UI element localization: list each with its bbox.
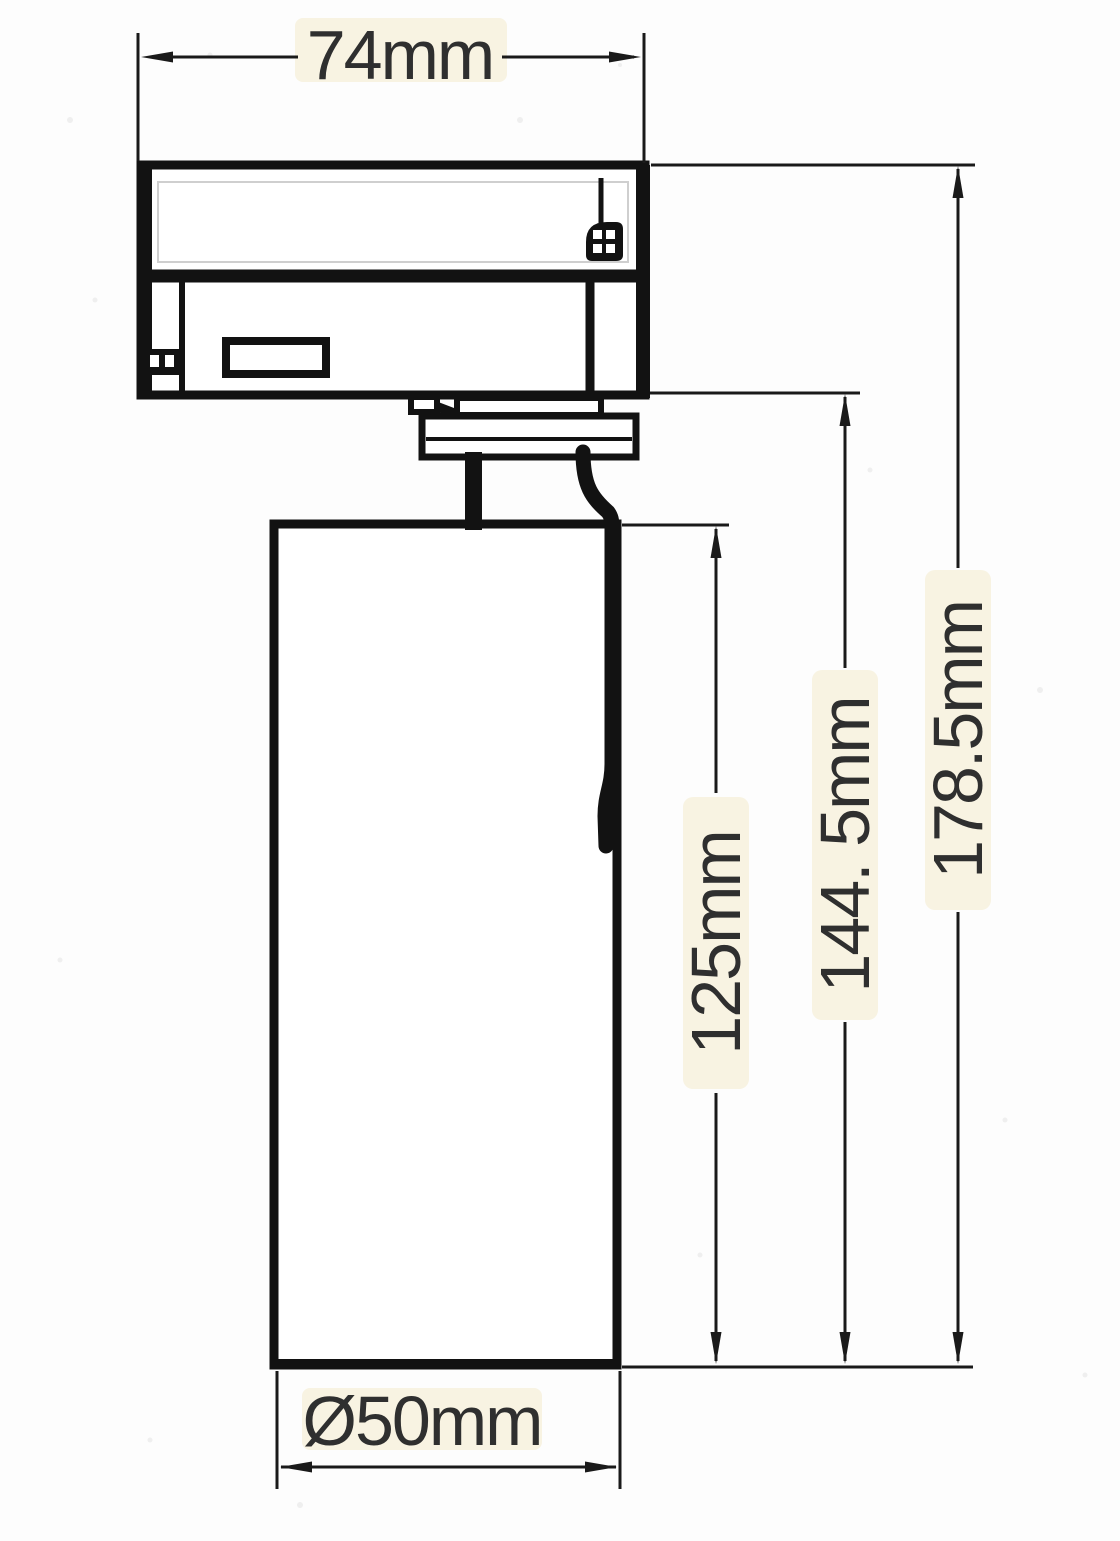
- arrow-down-icon: [711, 1332, 722, 1364]
- adapter-contact-blob-icon: [586, 222, 623, 261]
- stem-neck: [457, 398, 601, 415]
- arrow-left-icon: [141, 52, 173, 63]
- arrow-down-icon: [840, 1332, 851, 1364]
- arrow-left-icon: [280, 1462, 312, 1473]
- dimension-body-diameter: Ø50mm: [277, 1371, 620, 1489]
- stem-length-label: 144. 5mm: [806, 697, 884, 992]
- overall-length-label: 178.5mm: [919, 601, 997, 879]
- stem-collar: [422, 416, 636, 457]
- track-light-dimension-drawing: 74mm 125mm 144. 5mm: [0, 0, 1120, 1541]
- arrow-up-icon: [711, 526, 722, 558]
- dimension-body-length: 125mm: [622, 525, 755, 1364]
- stem-leg: [465, 452, 482, 530]
- arrow-up-icon: [953, 166, 964, 198]
- body-length-label: 125mm: [677, 831, 755, 1054]
- arrow-down-icon: [953, 1332, 964, 1364]
- track-adapter-head: [137, 165, 649, 398]
- arrow-right-icon: [585, 1462, 617, 1473]
- arrow-up-icon: [840, 394, 851, 426]
- adapter-label-plate: [226, 341, 326, 374]
- dimension-adapter-width: 74mm: [138, 16, 644, 163]
- adapter-lower-housing: [141, 276, 645, 395]
- adapter-clip-icon: [142, 349, 179, 375]
- stem-step: [411, 397, 437, 412]
- adapter-width-label: 74mm: [307, 16, 493, 94]
- lamp-cylinder: [274, 524, 617, 1365]
- technical-drawing-page: 74mm 125mm 144. 5mm: [0, 0, 1120, 1541]
- arrow-right-icon: [609, 52, 641, 63]
- lamp-body: [274, 524, 617, 1365]
- body-diameter-label: Ø50mm: [303, 1382, 542, 1460]
